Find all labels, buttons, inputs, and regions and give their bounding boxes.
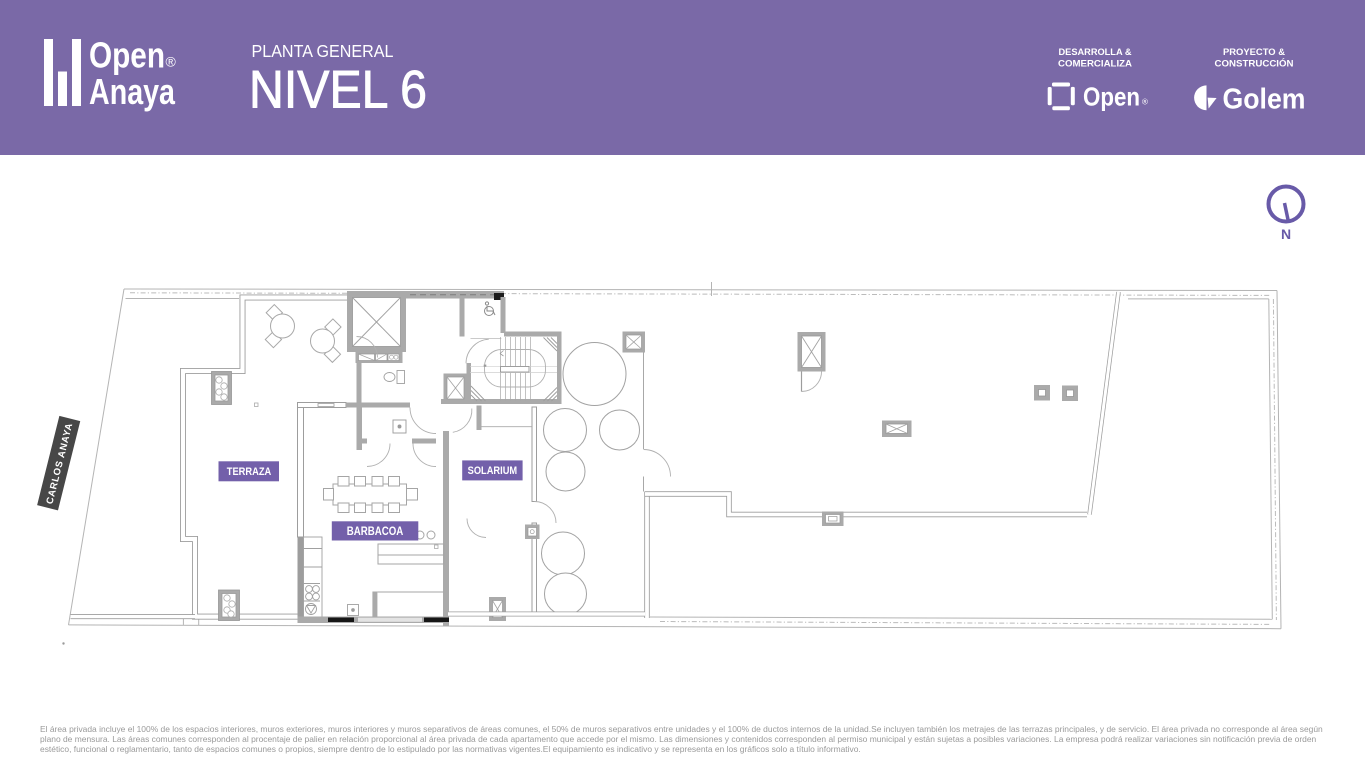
svg-text:TERRAZA: TERRAZA <box>227 466 272 478</box>
svg-text:N: N <box>1281 226 1291 242</box>
svg-text:SOLARIUM: SOLARIUM <box>468 465 518 477</box>
svg-text:BARBACOA: BARBACOA <box>347 524 404 538</box>
